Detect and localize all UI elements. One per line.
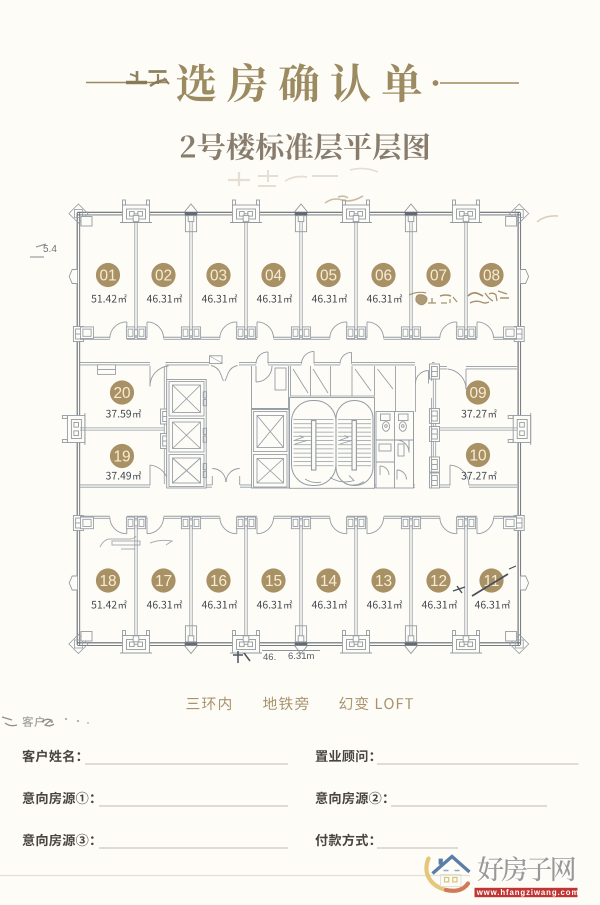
svg-text:20: 20 [113, 385, 130, 402]
svg-text:01: 01 [99, 268, 116, 285]
svg-text:05: 05 [320, 268, 337, 285]
svg-text:03: 03 [210, 268, 227, 285]
svg-text:10: 10 [469, 447, 486, 464]
svg-text:07: 07 [430, 268, 447, 285]
svg-text:15: 15 [265, 573, 282, 590]
svg-text:www.hfangziwang.com: www.hfangziwang.com [476, 888, 580, 897]
svg-text:5.4: 5.4 [43, 244, 57, 255]
svg-text:12: 12 [430, 573, 447, 590]
svg-text:02: 02 [155, 268, 172, 285]
svg-text:14: 14 [320, 573, 338, 590]
svg-text:13: 13 [375, 573, 392, 590]
svg-text:16: 16 [210, 573, 227, 590]
svg-text:19: 19 [113, 448, 130, 465]
svg-text:06: 06 [375, 268, 392, 285]
svg-text:17: 17 [155, 573, 172, 590]
svg-text:04: 04 [265, 268, 283, 285]
svg-text:6.31m: 6.31m [288, 651, 314, 662]
svg-text:09: 09 [469, 385, 486, 402]
svg-text:46.: 46. [263, 652, 276, 663]
svg-text:18: 18 [99, 573, 116, 590]
svg-text:08: 08 [483, 268, 500, 285]
